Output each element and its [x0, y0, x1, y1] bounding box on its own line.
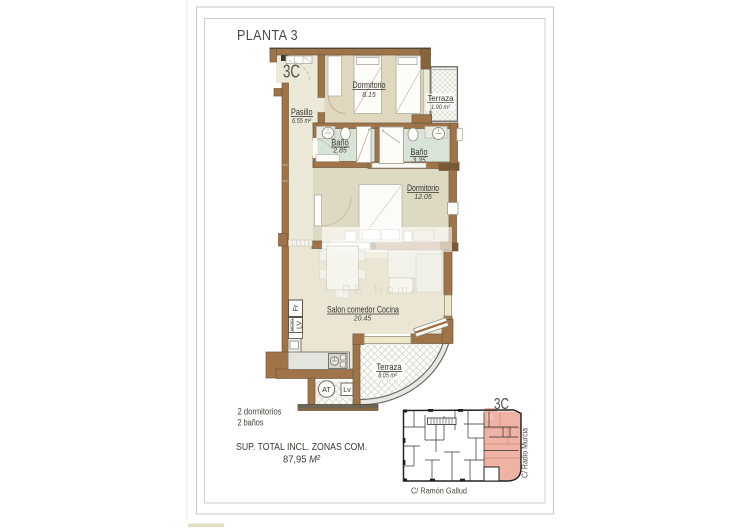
- svg-text:6.55 m²: 6.55 m²: [292, 118, 312, 125]
- svg-text:Salon comedor Cocina: Salon comedor Cocina: [327, 305, 399, 315]
- svg-text:Fr: Fr: [291, 304, 300, 312]
- svg-text:8.15: 8.15: [362, 92, 376, 99]
- svg-text:PLANTA 3: PLANTA 3: [237, 28, 298, 44]
- svg-text:3C: 3C: [494, 396, 509, 413]
- svg-text:2 dormitorios: 2 dormitorios: [238, 407, 282, 417]
- svg-text:12.05: 12.05: [414, 194, 432, 201]
- svg-text:3.35: 3.35: [412, 158, 426, 165]
- svg-text:Dormitorio: Dormitorio: [407, 183, 439, 193]
- svg-text:Lv: Lv: [343, 387, 351, 394]
- svg-text:Pasillo: Pasillo: [291, 107, 313, 117]
- svg-text:1.90 m²: 1.90 m²: [431, 104, 451, 111]
- svg-text:C/ Radio Murcia: C/ Radio Murcia: [521, 428, 530, 478]
- svg-text:MICRO: MICRO: [290, 319, 294, 331]
- svg-text:8.05 m²: 8.05 m²: [378, 373, 397, 380]
- svg-text:C/ Ramón Gallud: C/ Ramón Gallud: [411, 486, 467, 496]
- svg-text:2 baños: 2 baños: [238, 418, 264, 428]
- svg-text:87,95 M²: 87,95 M²: [283, 454, 320, 466]
- svg-text:Terraza: Terraza: [428, 94, 455, 103]
- svg-text:LV: LV: [297, 321, 304, 329]
- svg-text:Baño: Baño: [411, 147, 428, 157]
- svg-text:PE Home: PE Home: [342, 282, 422, 297]
- svg-text:20.45: 20.45: [353, 316, 372, 323]
- svg-text:3C: 3C: [283, 62, 300, 82]
- svg-text:AT: AT: [322, 387, 331, 394]
- svg-text:2.85: 2.85: [332, 148, 347, 155]
- svg-text:Baño: Baño: [331, 138, 349, 148]
- svg-text:Terraza: Terraza: [377, 362, 402, 372]
- svg-text:Dormitorio: Dormitorio: [353, 80, 386, 90]
- svg-text:SUP. TOTAL INCL. ZONAS COM.: SUP. TOTAL INCL. ZONAS COM.: [236, 441, 367, 453]
